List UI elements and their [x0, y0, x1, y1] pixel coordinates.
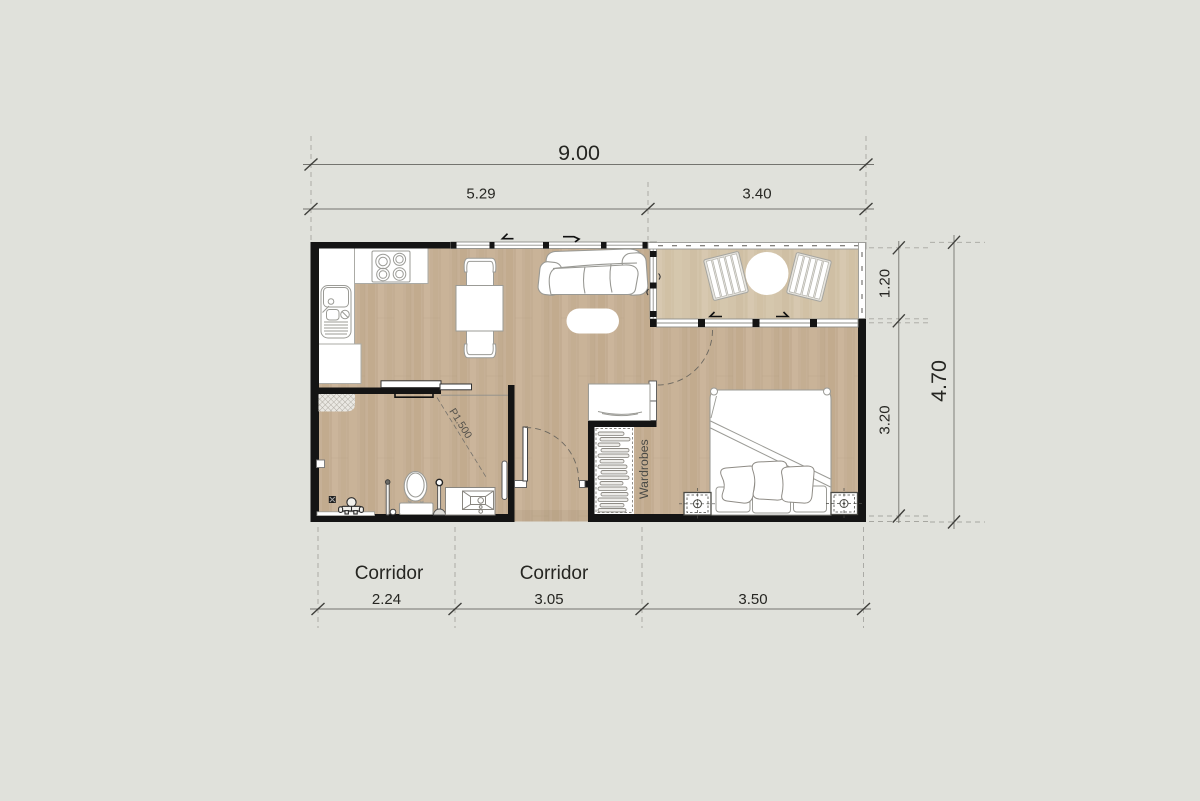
svg-text:3.20: 3.20 — [877, 405, 894, 434]
svg-text:3.50: 3.50 — [738, 591, 767, 608]
svg-text:5.29: 5.29 — [466, 186, 495, 203]
svg-text:1.20: 1.20 — [877, 269, 894, 298]
svg-text:4.70: 4.70 — [927, 360, 951, 402]
svg-text:3.40: 3.40 — [742, 186, 771, 203]
svg-text:3.05: 3.05 — [534, 591, 563, 608]
svg-text:2.24: 2.24 — [372, 591, 401, 608]
svg-text:Corridor: Corridor — [355, 563, 424, 584]
svg-text:9.00: 9.00 — [558, 141, 600, 165]
svg-text:Wardrobes: Wardrobes — [637, 439, 651, 499]
svg-text:Corridor: Corridor — [520, 563, 589, 584]
